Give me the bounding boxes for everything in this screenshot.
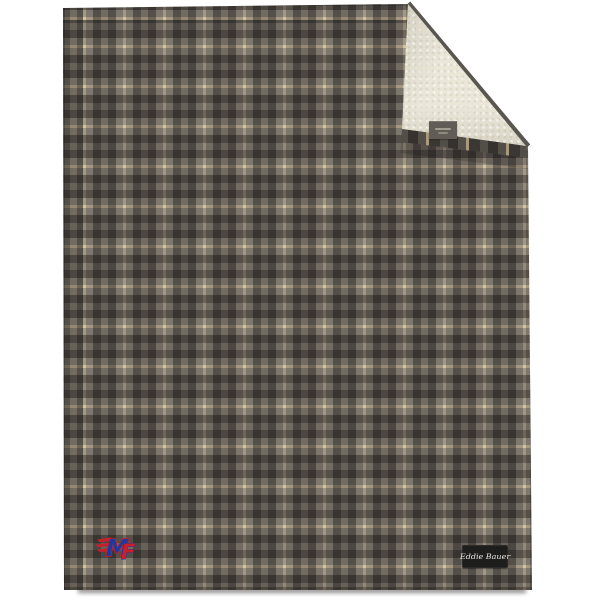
care-tag-text-line: [438, 132, 448, 134]
care-tag: [429, 121, 457, 139]
brand-tag: Eddie Bauer: [462, 545, 508, 568]
product-photo-stage: Eddie Bauer M F: [0, 0, 600, 600]
brand-tag-label: Eddie Bauer: [460, 552, 510, 561]
logo-letter-f: F: [121, 540, 136, 564]
mf-wings-logo-icon: M F: [95, 531, 141, 564]
sherpa-folded-corner: [400, 2, 528, 150]
care-tag-text-line: [435, 128, 451, 130]
